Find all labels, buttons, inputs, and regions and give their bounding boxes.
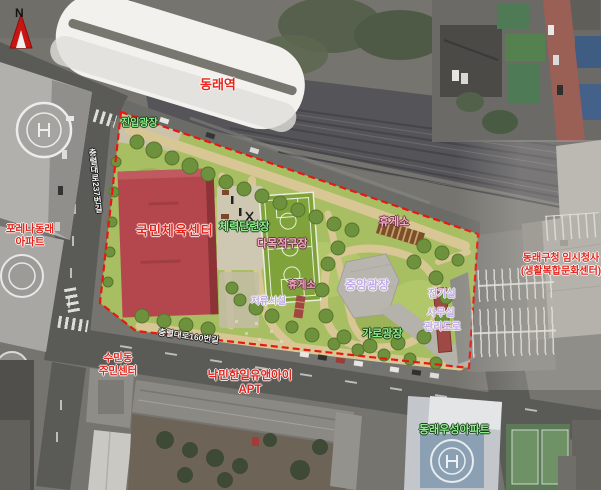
- sports-center-building: [117, 168, 218, 317]
- nakmin-apartment-label-line2: APT: [190, 383, 310, 397]
- forena-apartment-label: 포레나동래 아파트: [2, 223, 58, 249]
- shelter-top-label: 휴게소: [379, 216, 409, 230]
- woosung-apartment-label: 동래우성아파트: [419, 424, 490, 438]
- helipad-icon: [1, 255, 43, 297]
- forena-apartment-label-line2: 아파트: [2, 236, 58, 249]
- office-label: 사무실: [427, 308, 455, 321]
- woosung-apartment-tower: [404, 396, 502, 490]
- temporary-hall-label-line2: (생활복합문화센터): [505, 266, 601, 279]
- electrical-room-label: 전기실: [428, 289, 456, 302]
- site-plan-map: N 동래역 진입광장 국민체육센터 체력단련장 다목적구장 휴게소 휴게소 저류…: [0, 0, 601, 490]
- street-plaza-label: 가로광장: [362, 328, 402, 342]
- compass-north-label: N: [15, 6, 24, 21]
- temporary-hall-label: 동래구청 임시청사 (생활복합문화센터): [505, 253, 601, 278]
- fitness-area-label: 체력단련장: [219, 221, 270, 235]
- multipurpose-court-label: 다목적구장: [257, 238, 308, 252]
- community-center-label-line1: 수민동: [94, 352, 142, 365]
- shelter-court-label: 휴게소: [288, 280, 316, 293]
- detention-facility-label: 저류시설: [251, 296, 286, 308]
- helipad-icon: [17, 103, 71, 157]
- service-road-label: 관리도로: [424, 322, 461, 335]
- temporary-hall-label-line1: 동래구청 임시청사: [505, 253, 601, 266]
- central-plaza-label: 중앙광장: [345, 278, 389, 293]
- community-center-label: 수민동 주민센터: [94, 352, 142, 378]
- sports-center-label: 국민체육센터: [136, 223, 214, 239]
- nakmin-apartment-label-line1: 낙민한일유앤아이: [190, 369, 310, 383]
- forena-apartment-label-line1: 포레나동래: [2, 223, 58, 236]
- northeast-district: [432, 0, 601, 142]
- entrance-plaza-label: 진입광장: [121, 118, 158, 131]
- station-label: 동래역: [200, 77, 236, 93]
- nakmin-apartment-label: 낙민한일유앤아이 APT: [190, 369, 310, 398]
- community-center-label-line2: 주민센터: [94, 365, 142, 378]
